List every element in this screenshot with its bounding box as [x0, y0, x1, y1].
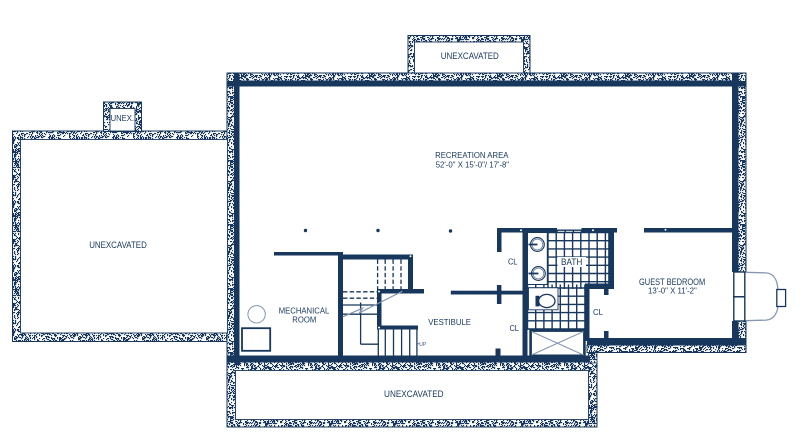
- svg-text:CL: CL: [593, 308, 603, 317]
- svg-text:CL: CL: [509, 324, 519, 333]
- svg-text:UNEXCAVATED: UNEXCAVATED: [384, 389, 444, 399]
- svg-text:RECREATION AREA: RECREATION AREA: [435, 150, 509, 160]
- svg-text:52'-0" X 15'-0"/ 17'-8": 52'-0" X 15'-0"/ 17'-8": [436, 160, 509, 170]
- svg-text:13'-0" X 11'-2": 13'-0" X 11'-2": [648, 286, 697, 296]
- svg-text:BATH: BATH: [561, 257, 582, 267]
- svg-text:CL: CL: [508, 257, 518, 266]
- svg-text:VESTIBULE: VESTIBULE: [428, 317, 471, 327]
- svg-text:UNEXCAVATED: UNEXCAVATED: [89, 240, 147, 250]
- svg-text:UP: UP: [419, 342, 426, 348]
- svg-text:ROOM: ROOM: [292, 314, 316, 324]
- svg-text:UNEXCAVATED: UNEXCAVATED: [441, 51, 499, 61]
- svg-text:UNEX.: UNEX.: [111, 113, 134, 123]
